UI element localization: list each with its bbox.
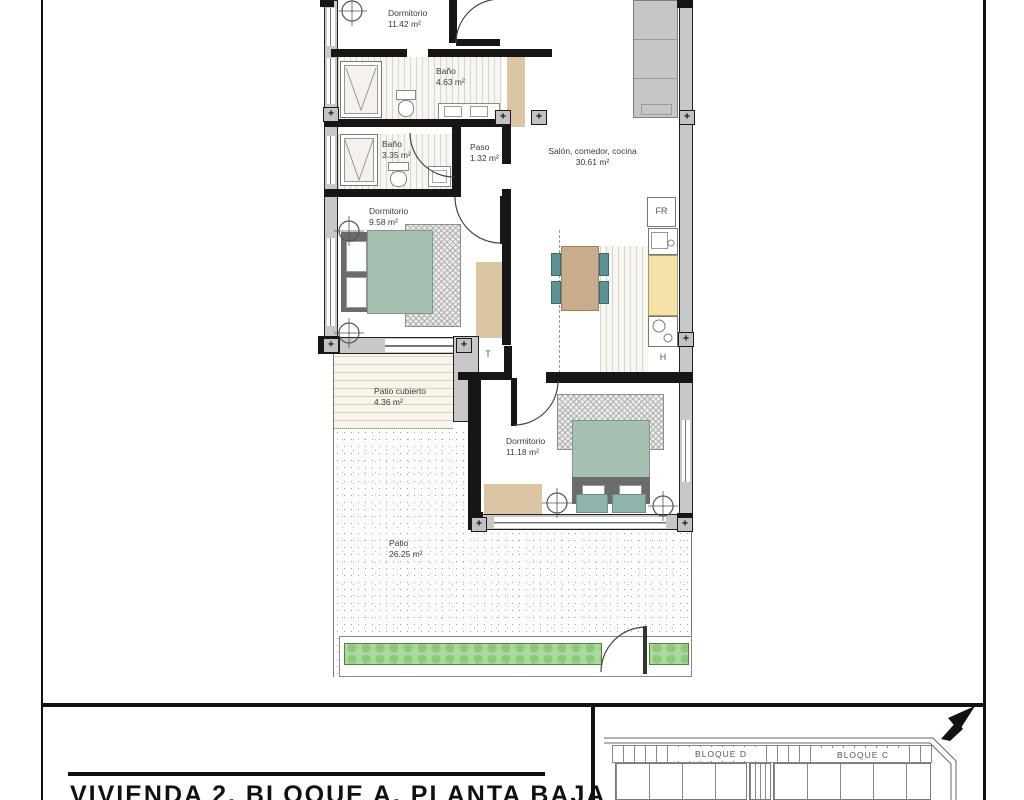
bed3-bench bbox=[612, 494, 646, 513]
wall bbox=[452, 126, 461, 189]
bedroom2-door-rug bbox=[476, 262, 504, 338]
window bbox=[327, 238, 335, 326]
patio-glass-door bbox=[494, 517, 666, 528]
room-area: 4.63 m² bbox=[436, 77, 465, 88]
toilet-bowl bbox=[390, 171, 407, 187]
column-target-marker bbox=[337, 0, 367, 26]
bed3-bench bbox=[576, 494, 608, 513]
wall bbox=[502, 119, 511, 164]
room-area: 4.36 m² bbox=[374, 397, 426, 408]
siteplan-building-d bbox=[615, 763, 747, 800]
wall bbox=[331, 49, 407, 57]
washbasin-inner bbox=[432, 170, 447, 183]
room-name: Baño bbox=[382, 139, 411, 150]
column-marker: + bbox=[677, 517, 693, 532]
room-label-dormitorio2: Dormitorio 9.58 m² bbox=[369, 206, 408, 229]
bed3-mattress bbox=[572, 420, 650, 480]
wall bbox=[428, 49, 552, 57]
bedroom3-door-arc bbox=[514, 381, 558, 425]
kitchen-counter bbox=[648, 255, 678, 316]
toilet bbox=[396, 90, 416, 100]
entrance-door-arc bbox=[456, 0, 500, 43]
titleblock-top-line bbox=[41, 703, 986, 707]
bloque-d-label: BLOQUE D bbox=[678, 747, 764, 761]
room-label-bano1: Baño 4.63 m² bbox=[436, 66, 465, 89]
dining-chair bbox=[599, 253, 609, 276]
room-name: Baño bbox=[436, 66, 465, 77]
room-area: 11.42 m² bbox=[388, 19, 427, 30]
dining-chair bbox=[551, 253, 561, 276]
bedroom2-door-arc bbox=[455, 197, 501, 243]
tank-label: T bbox=[478, 349, 498, 359]
kitchen-sink-basin bbox=[651, 232, 668, 249]
sheet-border-right bbox=[983, 0, 986, 800]
hob bbox=[648, 316, 678, 347]
column-marker: + bbox=[323, 107, 339, 122]
wall bbox=[468, 378, 481, 518]
room-name: Salón, comedor, cocina bbox=[540, 146, 645, 157]
bed2-pillow bbox=[346, 241, 367, 272]
sheet-border-left bbox=[41, 0, 43, 800]
column-marker: + bbox=[323, 338, 339, 353]
toilet-bowl bbox=[398, 100, 414, 117]
room-area: 11.18 m² bbox=[506, 447, 545, 458]
wall bbox=[324, 119, 510, 127]
hedge bbox=[649, 643, 689, 665]
sofa-cushion-line bbox=[634, 78, 677, 79]
garden-gate-opening bbox=[603, 638, 648, 676]
room-label-bano2: Baño 3.35 m² bbox=[382, 139, 411, 162]
sofa-armrest bbox=[641, 104, 672, 115]
sofa bbox=[633, 0, 678, 118]
column-marker: + bbox=[531, 110, 547, 125]
toilet bbox=[388, 162, 409, 171]
room-name: Dormitorio bbox=[369, 206, 408, 217]
wall bbox=[324, 189, 461, 197]
column-marker: + bbox=[678, 332, 694, 347]
north-arrow-icon bbox=[941, 706, 975, 741]
window bbox=[385, 339, 453, 352]
column-marker: + bbox=[679, 110, 695, 125]
room-label-patio-cubierto: Patio cubierto 4.36 m² bbox=[374, 386, 426, 409]
dining-chair bbox=[599, 281, 609, 304]
room-area: 30.61 m² bbox=[540, 157, 645, 168]
hedge bbox=[344, 643, 602, 665]
drawing-title: VIVIENDA 2, BLOQUE A, PLANTA BAJA bbox=[70, 781, 547, 800]
room-name: Patio cubierto bbox=[374, 386, 426, 397]
fridge-label: FR bbox=[647, 206, 676, 216]
sofa-cushion-line bbox=[634, 39, 677, 40]
bed2-mattress bbox=[367, 230, 433, 314]
window bbox=[327, 136, 335, 184]
room-area: 1.32 m² bbox=[470, 153, 499, 164]
column-marker: + bbox=[456, 338, 472, 353]
bedroom3-door-leaf bbox=[511, 378, 517, 426]
room-area: 26.25 m² bbox=[389, 549, 423, 560]
room-name: Patio bbox=[389, 538, 423, 549]
wall bbox=[449, 0, 457, 43]
room-label-salon: Salón, comedor, cocina 30.61 m² bbox=[540, 146, 645, 169]
shower-tray bbox=[340, 134, 378, 186]
window bbox=[682, 420, 690, 482]
patio-left-boundary-line bbox=[333, 352, 334, 677]
sink-basin bbox=[444, 106, 462, 117]
shower-tray bbox=[340, 61, 382, 118]
garden-gate-leaf bbox=[643, 626, 647, 674]
bedroom2-door-leaf bbox=[500, 196, 506, 244]
wall bbox=[458, 372, 512, 380]
room-label-paso: Paso 1.32 m² bbox=[470, 142, 499, 165]
bed2-pillow bbox=[346, 277, 367, 308]
room-label-patio: Patio 26.25 m² bbox=[389, 538, 423, 561]
column-marker: + bbox=[495, 110, 511, 125]
room-name: Paso bbox=[470, 142, 499, 153]
room-area: 3.35 m² bbox=[382, 150, 411, 161]
floor-plan-sheet: + + + + + + + + + Dormitorio 11.42 m² Ba… bbox=[0, 0, 1024, 800]
room-name: Dormitorio bbox=[388, 8, 427, 19]
sink-basin bbox=[470, 106, 488, 117]
covered-patio-dotted-line bbox=[334, 428, 453, 429]
wall bbox=[546, 372, 693, 383]
title-underline bbox=[68, 772, 545, 776]
siteplan-building-c bbox=[773, 763, 931, 800]
window bbox=[327, 58, 335, 104]
bedroom3-rug-tan bbox=[484, 484, 542, 514]
bloque-c-label: BLOQUE C bbox=[820, 748, 906, 762]
wall-corner bbox=[320, 0, 334, 7]
column-marker: + bbox=[471, 517, 487, 532]
entrance-door-leaf bbox=[456, 39, 500, 46]
hob-label: H bbox=[650, 352, 676, 362]
window bbox=[327, 8, 335, 46]
siteplan-stairwell bbox=[749, 763, 771, 800]
room-area: 9.58 m² bbox=[369, 217, 408, 228]
room-label-dormitorio3: Dormitorio 11.18 m² bbox=[506, 436, 545, 459]
wall-corner bbox=[677, 0, 693, 8]
dining-table bbox=[561, 246, 599, 311]
room-name: Dormitorio bbox=[506, 436, 545, 447]
dining-chair bbox=[551, 281, 561, 304]
room-label-dormitorio1: Dormitorio 11.42 m² bbox=[388, 8, 427, 31]
